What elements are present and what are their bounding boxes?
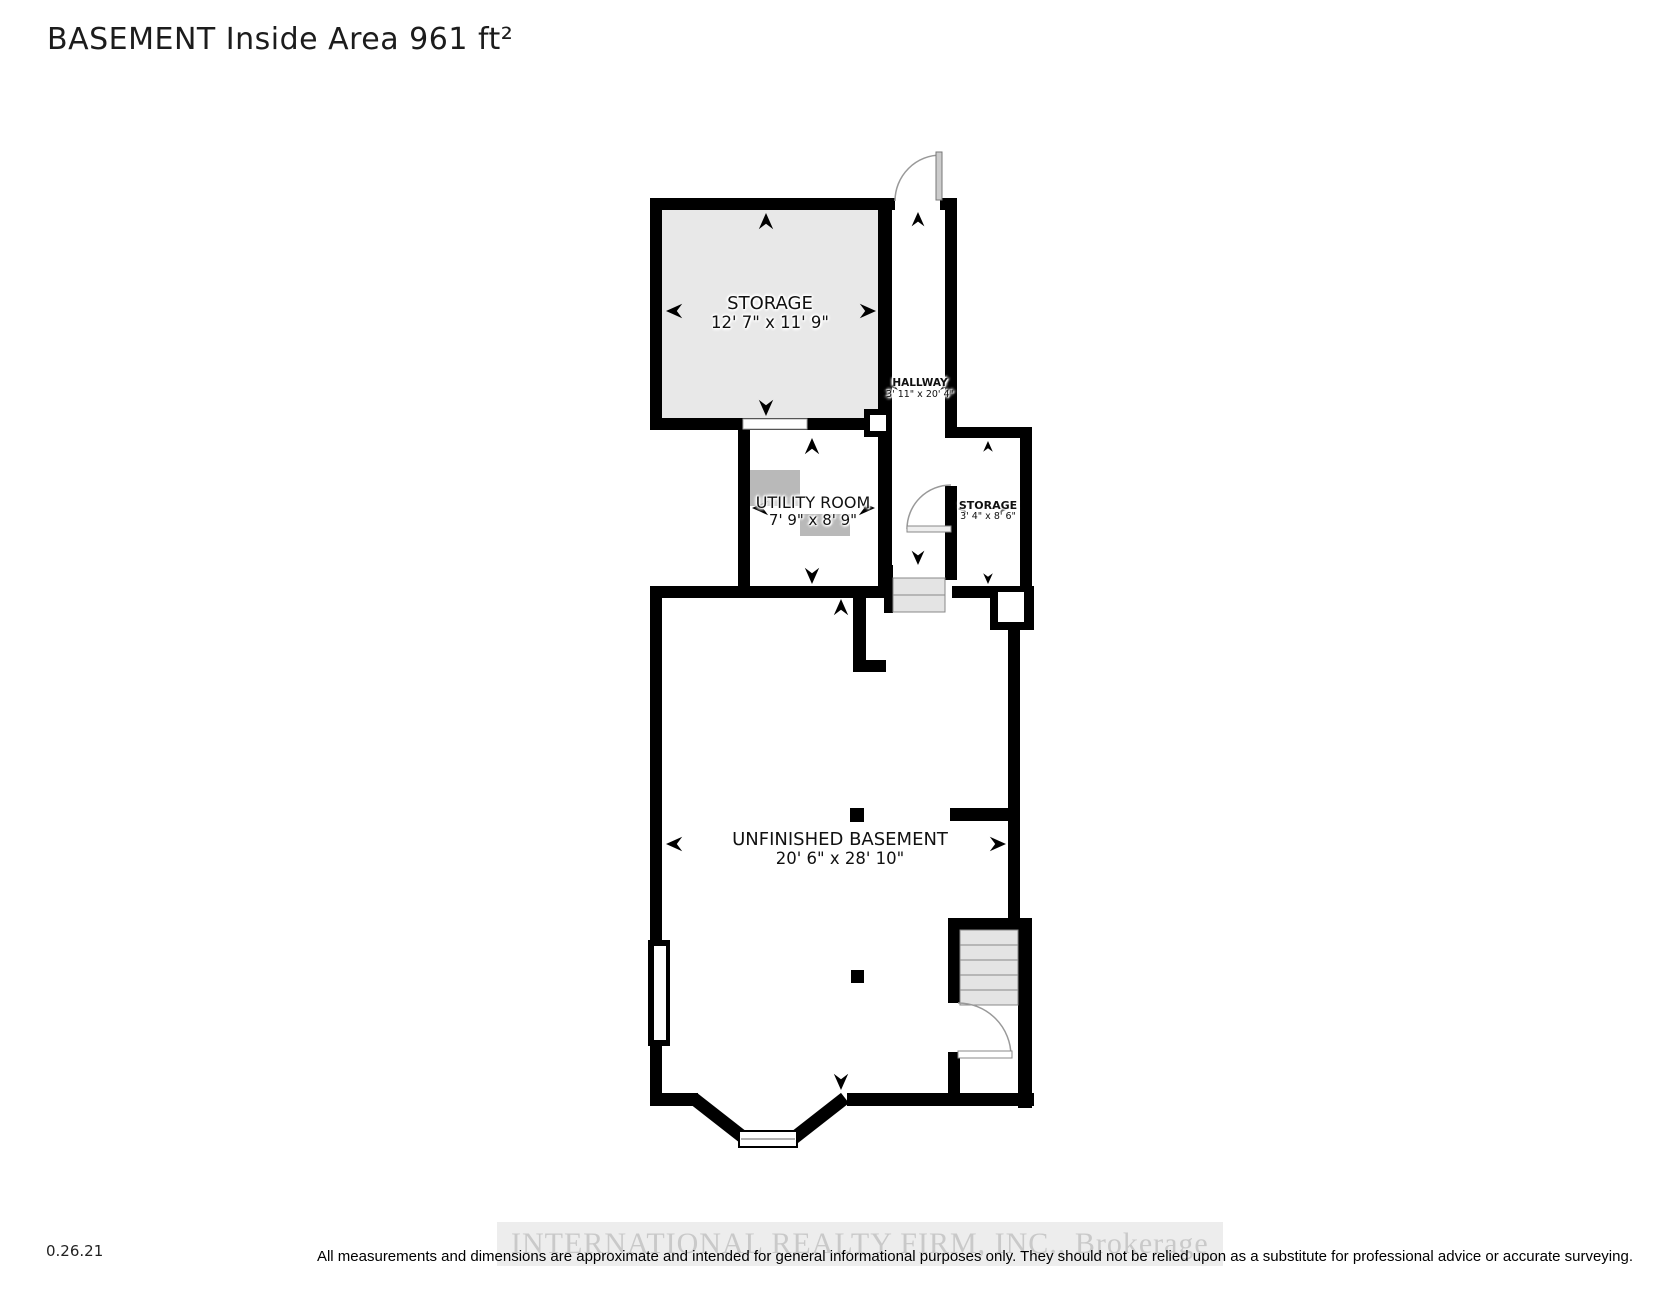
- dim-arrow-right: [990, 837, 1006, 851]
- small-storage-top-wall: [945, 427, 1032, 438]
- footer-date: 0.26.21: [46, 1242, 103, 1260]
- basement-top-wall-left: [650, 586, 890, 598]
- small-storage-right-wall: [1020, 427, 1032, 598]
- lower-stair-tread: [960, 990, 1018, 1005]
- storage-doorway-opening: [743, 419, 807, 429]
- upper-stair-side-wall: [884, 565, 893, 613]
- right-stub-wall-1: [950, 808, 1020, 821]
- bay-diagonal-right: [790, 1098, 845, 1141]
- room-name: STORAGE: [711, 294, 829, 314]
- lower-stair-tread: [960, 945, 1018, 960]
- dim-arrow-down: [834, 1074, 848, 1090]
- stairwell-left-wall: [948, 930, 960, 1003]
- small-storage-door-arc: [907, 485, 951, 529]
- hallway-label: HALLWAY 3' 11" x 20' 4": [886, 378, 954, 400]
- disclaimer-text: All measurements and dimensions are appr…: [317, 1248, 1633, 1265]
- dim-arrow-down: [805, 568, 819, 584]
- basement-label: UNFINISHED BASEMENT 20' 6" x 28' 10": [732, 830, 948, 869]
- upper-stair-tread: [893, 578, 945, 595]
- floor-plan-drawing: [0, 0, 1680, 1299]
- lower-stair-tread: [960, 930, 1018, 945]
- corner-notch-inner: [998, 592, 1024, 622]
- storage-top-wall: [650, 198, 895, 210]
- utility-left-wall: [738, 430, 750, 598]
- storage-room-label: STORAGE 12' 7" x 11' 9": [711, 294, 829, 333]
- room-name: UNFINISHED BASEMENT: [732, 830, 948, 850]
- entry-door-arc: [895, 155, 941, 201]
- upper-stair-tread: [893, 595, 945, 612]
- hallway-door-corner-wall: [940, 198, 957, 210]
- basement-door-arc: [958, 1003, 1011, 1056]
- lower-stair-tread: [960, 975, 1018, 990]
- small-storage-door-leaf: [907, 526, 951, 532]
- dim-arrow-down: [912, 551, 925, 565]
- bottom-wall-right: [847, 1093, 1034, 1106]
- dim-arrow-down: [983, 573, 993, 584]
- support-column-2: [851, 970, 864, 983]
- vestibule-left-wall: [948, 1052, 960, 1097]
- small-storage-left-wall: [945, 486, 957, 580]
- utility-room-label: UTILITY ROOM 7' 9" x 8' 9": [756, 494, 871, 529]
- room-name: HALLWAY: [886, 378, 954, 390]
- room-dimensions: 12' 7" x 11' 9": [711, 314, 829, 332]
- dim-arrow-left: [666, 837, 682, 851]
- room-dimensions: 20' 6" x 28' 10": [732, 850, 948, 868]
- basement-right-wall-lower: [1018, 918, 1032, 1108]
- storage-hallway-wall: [878, 210, 892, 598]
- basement-door-leaf: [958, 1051, 1012, 1058]
- dim-arrow-up: [805, 438, 819, 454]
- room-name: UTILITY ROOM: [756, 494, 871, 512]
- support-column-1: [850, 808, 864, 822]
- chimney-inner: [870, 415, 886, 431]
- dim-arrow-up: [912, 212, 925, 226]
- entry-door-leaf: [936, 152, 942, 200]
- basement-partition-foot: [853, 660, 886, 672]
- left-window: [653, 945, 667, 1041]
- room-dimensions: 3' 4" x 8' 6": [959, 512, 1017, 523]
- small-storage-label: STORAGE 3' 4" x 8' 6": [959, 500, 1017, 523]
- storage-left-wall: [650, 198, 662, 430]
- basement-right-wall-upper: [1008, 622, 1020, 814]
- dim-arrow-up: [834, 599, 848, 615]
- room-dimensions: 3' 11" x 20' 4": [886, 390, 954, 401]
- lower-stair-tread: [960, 960, 1018, 975]
- basement-right-wall-mid: [1008, 821, 1020, 918]
- room-dimensions: 7' 9" x 8' 9": [756, 512, 871, 529]
- dim-arrow-up: [983, 441, 993, 452]
